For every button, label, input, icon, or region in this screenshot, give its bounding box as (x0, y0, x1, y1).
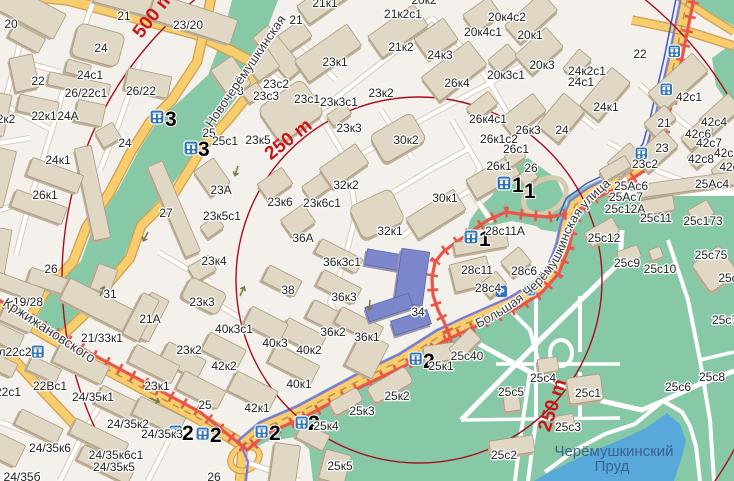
svg-text:вл22с2: вл22с2 (0, 345, 32, 359)
svg-text:25с6: 25с6 (665, 380, 691, 394)
svg-text:23с2: 23с2 (632, 157, 658, 171)
svg-text:25с12: 25с12 (588, 231, 621, 245)
svg-text:2: 2 (210, 424, 222, 447)
svg-text:26к1: 26к1 (32, 188, 58, 202)
svg-text:25с8: 25с8 (699, 370, 725, 384)
svg-text:26/22с1: 26/22с1 (65, 86, 108, 100)
svg-text:36к2: 36к2 (320, 325, 346, 339)
svg-text:36к3с1: 36к3с1 (323, 255, 361, 269)
svg-text:38: 38 (281, 283, 295, 297)
svg-text:20к1: 20к1 (517, 28, 543, 42)
svg-text:26с1: 26с1 (503, 142, 529, 156)
svg-text:40к3: 40к3 (262, 336, 288, 350)
svg-text:24А: 24А (57, 109, 78, 123)
svg-text:25к1: 25к1 (428, 359, 454, 373)
svg-text:26: 26 (44, 262, 58, 276)
svg-text:42с5: 42с5 (714, 146, 734, 160)
svg-text:23к2: 23к2 (368, 86, 394, 100)
svg-text:25с173: 25с173 (683, 214, 723, 228)
svg-text:25к3: 25к3 (349, 404, 375, 418)
svg-text:24/35б: 24/35б (4, 470, 41, 481)
svg-text:32к2: 32к2 (333, 178, 359, 192)
svg-text:22к1: 22к1 (31, 109, 57, 123)
svg-text:40к2: 40к2 (296, 343, 322, 357)
svg-text:24: 24 (555, 123, 569, 137)
svg-text:25с3: 25с3 (555, 420, 581, 434)
svg-text:30к1: 30к1 (432, 191, 458, 205)
svg-text:23к4: 23к4 (201, 254, 227, 268)
svg-text:23к1: 23к1 (144, 379, 170, 393)
svg-text:23к5с1: 23к5с1 (203, 209, 241, 223)
svg-text:21: 21 (289, 13, 303, 27)
svg-text:26к1: 26к1 (486, 159, 512, 173)
svg-text:27: 27 (159, 206, 173, 220)
svg-text:23к3: 23к3 (336, 121, 362, 135)
svg-text:22: 22 (633, 47, 647, 61)
svg-text:24: 24 (118, 136, 132, 150)
svg-text:40к1: 40к1 (286, 377, 312, 391)
svg-text:25с9: 25с9 (614, 256, 640, 270)
svg-text:23к3с1: 23к3с1 (320, 95, 358, 109)
svg-text:23А: 23А (210, 183, 231, 197)
svg-text:25к5: 25к5 (327, 459, 353, 473)
svg-text:26к4с1: 26к4с1 (469, 112, 507, 126)
svg-text:28с11: 28с11 (461, 263, 493, 277)
svg-text:21А: 21А (139, 312, 160, 326)
svg-text:20к3: 20к3 (529, 58, 555, 72)
svg-text:24к2с1: 24к2с1 (568, 64, 606, 78)
svg-text:25с1: 25с1 (212, 134, 238, 148)
svg-text:42с8: 42с8 (688, 152, 714, 166)
svg-text:42к2: 42к2 (211, 359, 237, 373)
svg-text:25с7: 25с7 (712, 313, 734, 327)
svg-text:25с75: 25с75 (695, 248, 728, 262)
svg-text:42с1: 42с1 (676, 90, 702, 104)
svg-text:3: 3 (165, 108, 177, 131)
svg-text:26/22: 26/22 (126, 84, 156, 98)
svg-text:23с3: 23с3 (253, 89, 279, 103)
svg-text:25к4: 25к4 (313, 419, 339, 433)
svg-text:31: 31 (103, 287, 117, 301)
svg-text:21к2: 21к2 (388, 40, 414, 54)
svg-text:25с40: 25с40 (451, 349, 484, 363)
svg-text:Пруд: Пруд (595, 458, 630, 475)
svg-text:23/20: 23/20 (173, 18, 203, 32)
svg-text:2: 2 (182, 422, 194, 445)
svg-text:28с11А: 28с11А (485, 224, 525, 238)
svg-text:28с4: 28с4 (475, 281, 501, 295)
svg-text:2: 2 (269, 422, 281, 445)
svg-text:25к2: 25к2 (384, 389, 410, 403)
svg-text:23к3: 23к3 (189, 295, 215, 309)
svg-text:24к3: 24к3 (427, 48, 453, 62)
svg-text:20к4с1: 20к4с1 (464, 25, 502, 39)
svg-text:26к3: 26к3 (515, 123, 541, 137)
svg-text:21: 21 (657, 116, 671, 130)
svg-text:21/33к1: 21/33к1 (81, 331, 123, 345)
svg-text:25Ас6: 25Ас6 (614, 179, 648, 193)
svg-text:21к1: 21к1 (312, 0, 338, 10)
svg-text:40к3с1: 40к3с1 (215, 322, 253, 336)
svg-text:23: 23 (655, 141, 669, 155)
svg-text:26: 26 (524, 161, 538, 175)
svg-text:1: 1 (524, 180, 536, 203)
svg-text:36А: 36А (292, 231, 313, 245)
svg-text:21к2с1: 21к2с1 (384, 7, 422, 21)
svg-text:25с: 25с (718, 271, 734, 285)
svg-text:20: 20 (4, 17, 18, 31)
svg-text:25с5: 25с5 (498, 385, 524, 399)
svg-text:36к1: 36к1 (354, 330, 380, 344)
svg-text:30к2: 30к2 (393, 133, 419, 147)
svg-text:25с1: 25с1 (575, 386, 601, 400)
svg-text:26к4: 26к4 (444, 76, 470, 90)
svg-text:23с1: 23с1 (294, 92, 320, 106)
svg-text:22Вс1: 22Вс1 (33, 379, 67, 393)
svg-text:23к6: 23к6 (267, 195, 293, 209)
svg-text:20к3с1: 20к3с1 (487, 68, 525, 82)
svg-text:25с10: 25с10 (644, 262, 677, 276)
svg-text:36к3: 36к3 (331, 290, 357, 304)
svg-text:24: 24 (94, 41, 108, 55)
svg-text:1: 1 (512, 174, 524, 197)
svg-text:24/35к1: 24/35к1 (72, 390, 114, 404)
svg-text:34: 34 (411, 305, 425, 319)
svg-text:20к2: 20к2 (411, 0, 437, 7)
svg-text:42с: 42с (719, 160, 734, 174)
svg-text:21: 21 (117, 9, 131, 23)
svg-text:24к1: 24к1 (45, 153, 71, 167)
svg-text:23к1: 23к1 (322, 55, 348, 69)
svg-text:42к1: 42к1 (244, 401, 270, 415)
svg-text:26: 26 (207, 470, 221, 481)
svg-text:32к1: 32к1 (377, 224, 403, 238)
svg-text:24/35к5: 24/35к5 (93, 460, 135, 474)
svg-text:22c1: 22c1 (0, 385, 21, 399)
svg-text:24с1: 24с1 (77, 68, 103, 82)
svg-text:23к6с1: 23к6с1 (303, 196, 341, 210)
svg-text:25Ас4: 25Ас4 (695, 177, 729, 191)
svg-text:3: 3 (198, 138, 210, 161)
svg-text:2к2: 2к2 (0, 112, 16, 126)
svg-text:24/35к6: 24/35к6 (29, 441, 71, 455)
svg-text:24/35к3: 24/35к3 (141, 427, 183, 441)
svg-text:23к2: 23к2 (176, 343, 202, 357)
svg-text:25с2: 25с2 (491, 448, 517, 462)
svg-text:22: 22 (31, 74, 45, 88)
svg-text:24к1: 24к1 (593, 100, 619, 114)
svg-text:20к4с2: 20к4с2 (488, 10, 526, 24)
svg-text:25: 25 (198, 398, 212, 412)
svg-text:25с11: 25с11 (640, 211, 672, 225)
